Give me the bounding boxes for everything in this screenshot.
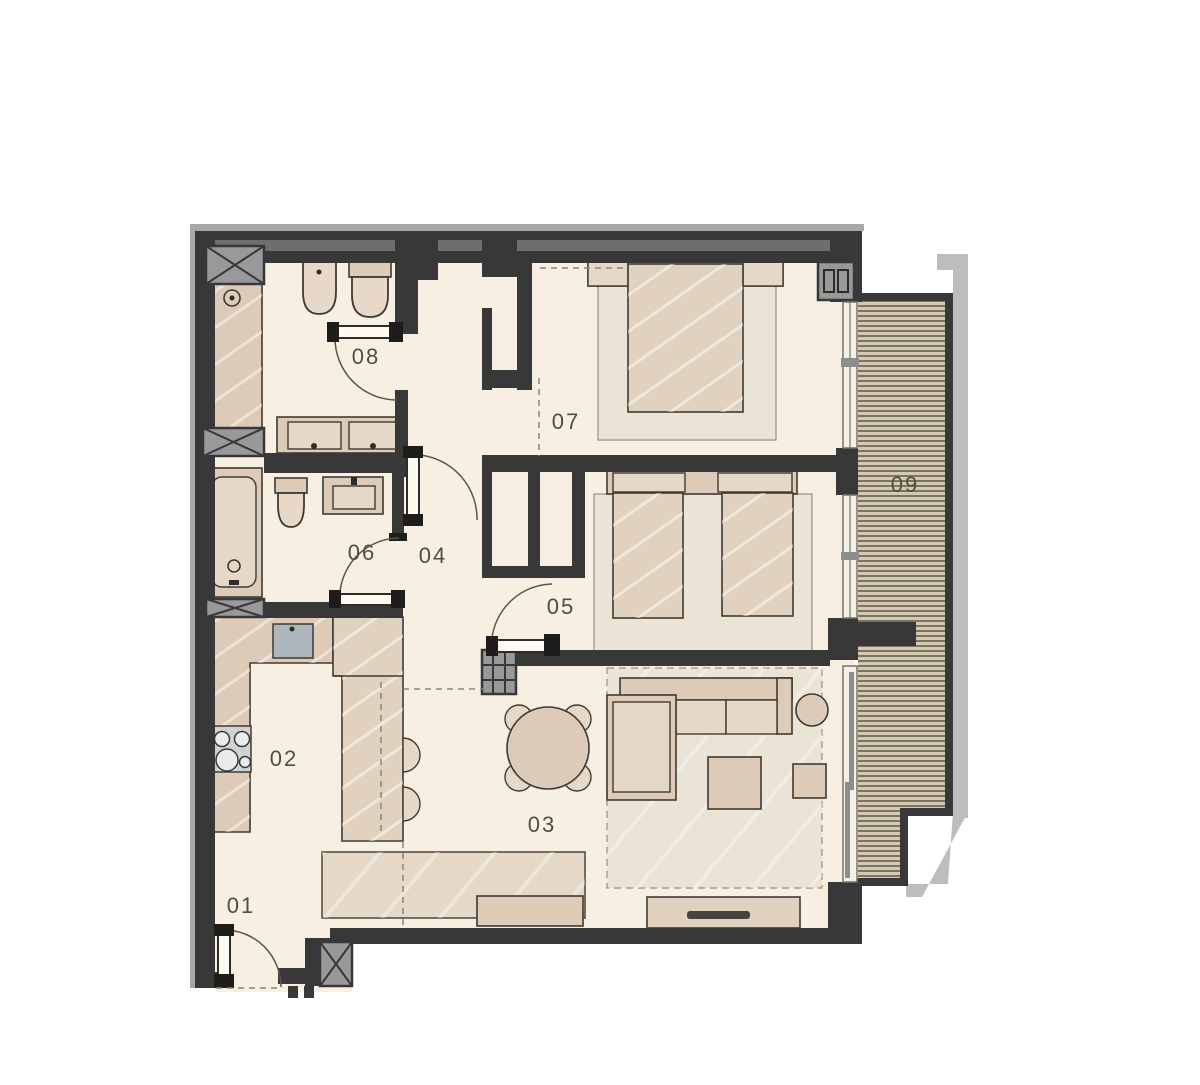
door-leaf <box>335 594 399 605</box>
nightstand <box>588 260 628 286</box>
sliding-door-panel <box>849 672 854 790</box>
sofa-chaise-cushion <box>613 702 670 792</box>
side-table <box>793 764 826 798</box>
tv-icon <box>687 911 750 919</box>
balcony-concrete-edge <box>953 268 968 818</box>
balcony-deck <box>854 254 968 897</box>
sofa-cushion <box>676 700 726 734</box>
coffee-table <box>708 757 761 809</box>
toilet-icon <box>352 277 388 317</box>
sofa-armrest <box>777 678 792 734</box>
nightstand <box>743 260 783 286</box>
entry-bench <box>477 896 583 926</box>
room-label-09: 09 <box>891 472 919 498</box>
window-pier <box>828 618 858 660</box>
windows <box>841 302 859 882</box>
door-leaf <box>333 326 397 338</box>
room-label-06: 06 <box>348 540 376 566</box>
shaft-duct <box>482 650 516 694</box>
toilet-tank <box>275 478 307 493</box>
room-label-02: 02 <box>270 746 298 772</box>
window-mullion <box>841 552 859 560</box>
sofa-cushion <box>726 700 777 734</box>
floor-plan: 01 02 03 04 05 06 07 08 09 <box>0 0 1200 1085</box>
faucet-icon <box>351 477 357 485</box>
door-leaf <box>407 452 419 520</box>
wall-vanity-back <box>264 453 408 473</box>
faucet-icon <box>311 443 317 449</box>
balcony-divider-wall <box>858 622 916 646</box>
balcony-decking <box>858 299 948 881</box>
faucet-icon <box>370 443 376 449</box>
side-table-round <box>796 694 828 726</box>
room-label-08: 08 <box>352 344 380 370</box>
wall-corner-se <box>828 882 862 944</box>
balcony-concrete-top <box>937 254 968 270</box>
room-label-05: 05 <box>547 594 575 620</box>
room-label-07: 07 <box>552 409 580 435</box>
window-mullion <box>841 358 859 367</box>
wall-living-divider <box>516 650 830 666</box>
room-label-03: 03 <box>528 812 556 838</box>
exterior-wall-bottom <box>330 928 862 944</box>
toilet-icon <box>278 493 304 527</box>
faucet-icon <box>290 627 295 632</box>
pillow <box>718 473 792 492</box>
pillow <box>613 473 685 492</box>
floor-plan-drawing <box>0 0 1200 1085</box>
balcony-concrete-step <box>906 812 968 897</box>
entry-furniture <box>322 852 585 926</box>
sliding-door-panel <box>845 782 850 878</box>
window-pier <box>836 448 858 495</box>
dining-table-icon <box>507 707 589 789</box>
room-label-01: 01 <box>227 893 255 919</box>
room-label-04: 04 <box>419 543 447 569</box>
door-leaf <box>492 640 552 652</box>
bathtub-inner <box>212 477 256 587</box>
